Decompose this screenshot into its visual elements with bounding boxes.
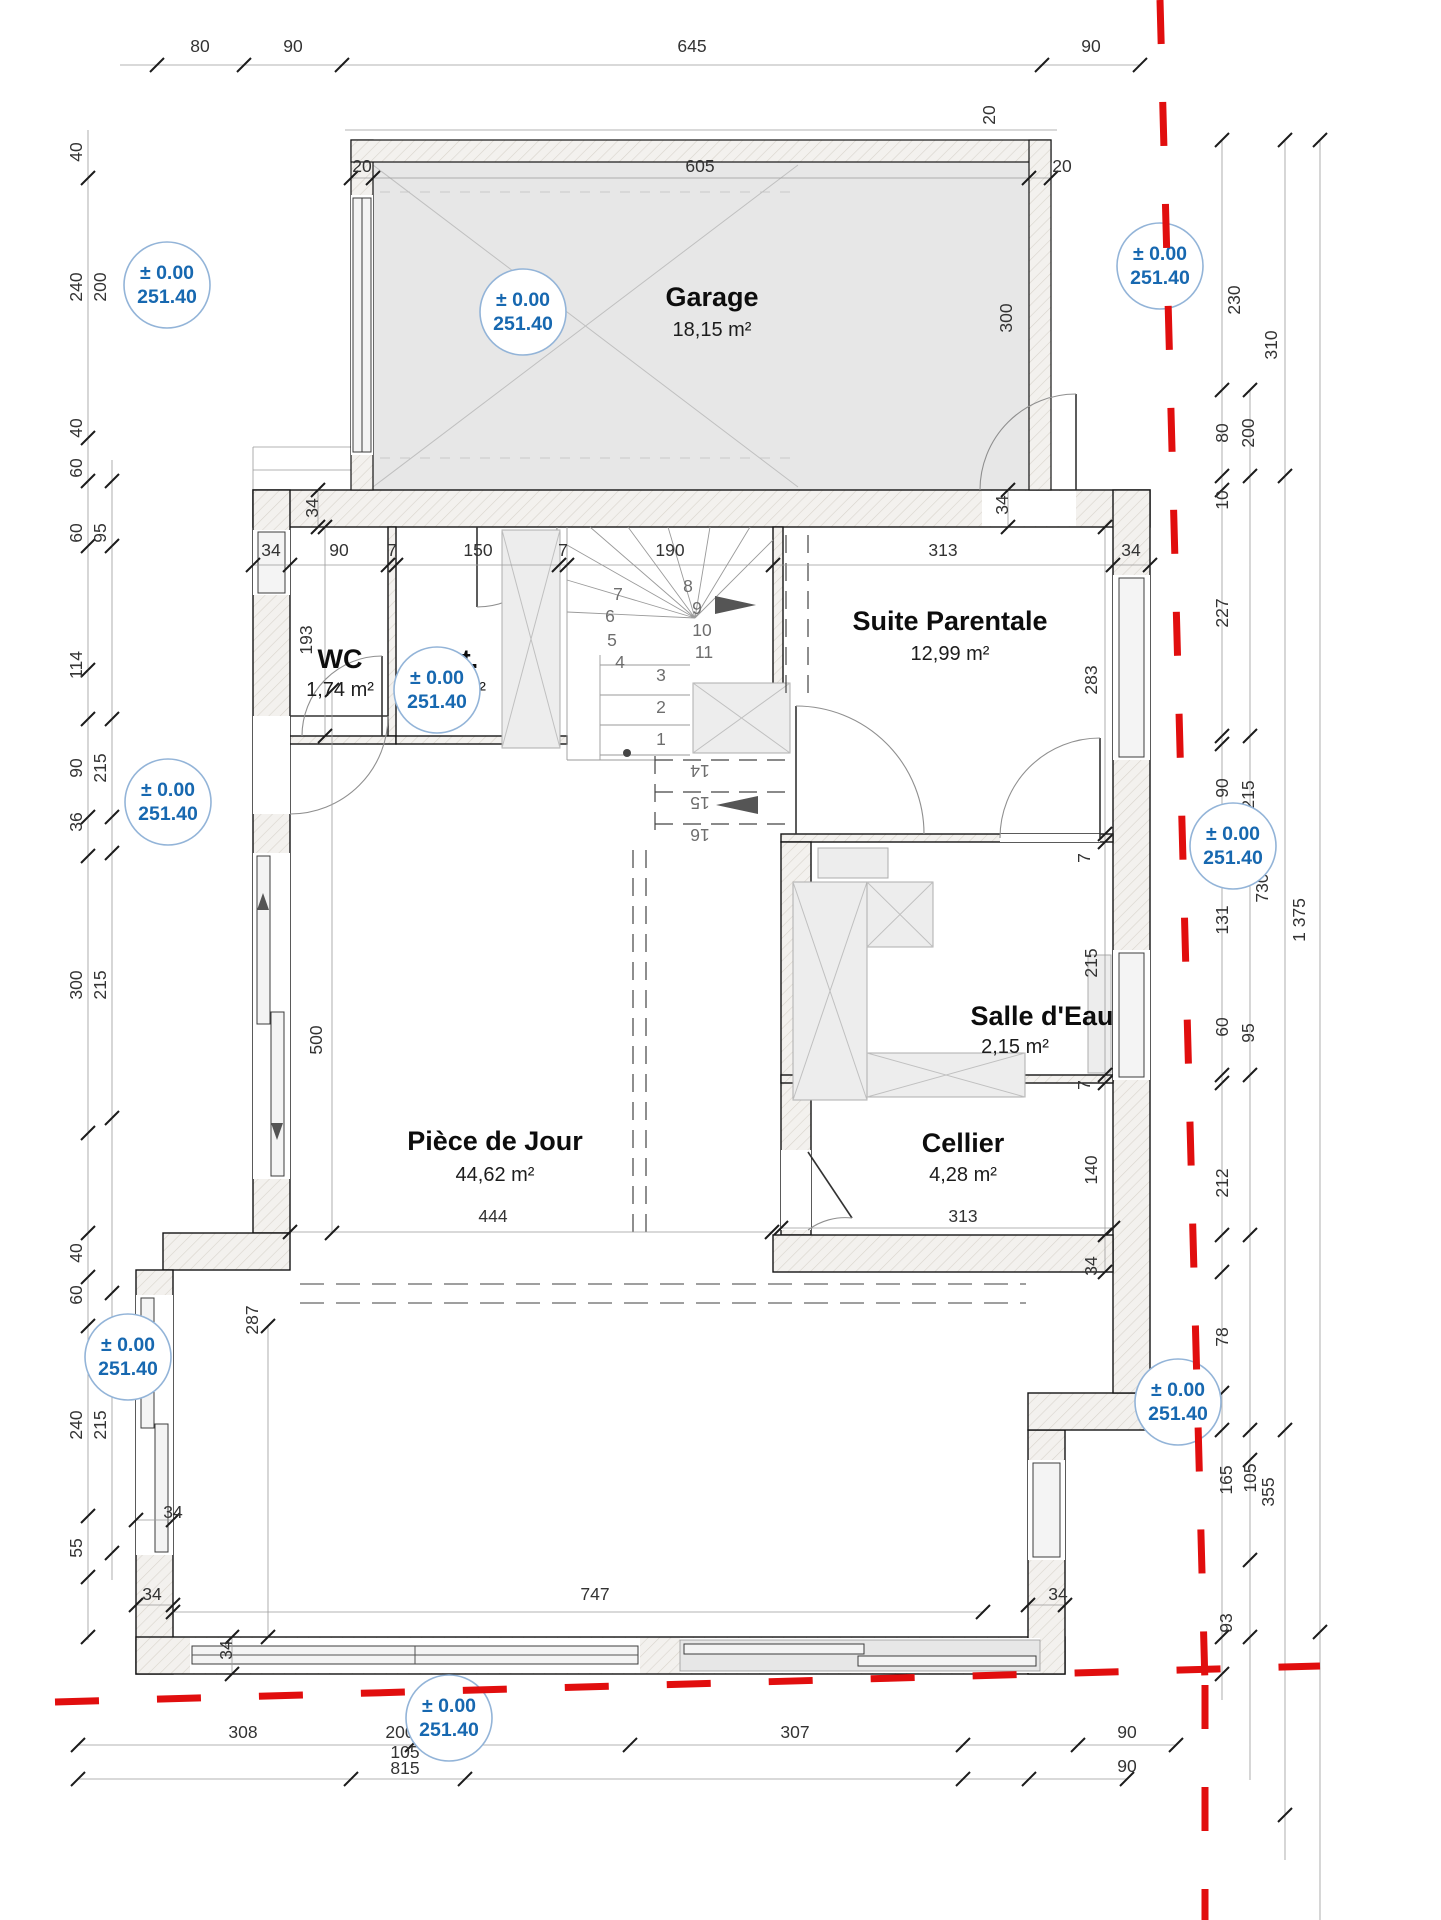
dim-label: 240 (66, 1410, 86, 1439)
svg-text:251.40: 251.40 (138, 803, 198, 825)
wall-wc-bottom (290, 736, 396, 744)
cellier-door (808, 1152, 852, 1230)
stair-under-flight (655, 756, 790, 830)
dim-label: 310 (1261, 330, 1281, 359)
dim-label: 60 (66, 1285, 86, 1305)
dim-label: 60 (66, 523, 86, 543)
floor-plan-drawing: Garage 18,15 m² WC 1,74 m² Dgt. 2,90 m² … (0, 0, 1441, 1920)
dim-label: 140 (1081, 1155, 1101, 1184)
wall-right-jog (1028, 1393, 1150, 1430)
dim-label: 16 (690, 825, 709, 845)
dim-label: 105 (1240, 1463, 1260, 1492)
svg-text:251.40: 251.40 (137, 286, 197, 308)
elevation-marker: ± 0.00251.40 (85, 1314, 171, 1400)
svg-text:± 0.00: ± 0.00 (141, 779, 195, 801)
dim-label: 215 (1081, 948, 1101, 977)
entry-door (290, 716, 388, 814)
elevation-marker: ± 0.00251.40 (1190, 803, 1276, 889)
svg-text:251.40: 251.40 (493, 313, 553, 335)
dim-label: 8 (683, 576, 693, 596)
dim-label: 215 (90, 753, 110, 782)
dim-label: 10 (692, 620, 712, 640)
dim-label: 80 (190, 36, 210, 56)
dim-label: 283 (1081, 665, 1101, 694)
dim-label: 444 (478, 1206, 507, 1226)
dim-label: 60 (1212, 1017, 1232, 1037)
elevation-marker: ± 0.00251.40 (394, 647, 480, 733)
stair-up-arrow (715, 596, 756, 614)
bottom-window (192, 1646, 638, 1664)
dim-label: 34 (992, 495, 1012, 515)
dim-label: 9 (692, 598, 702, 618)
sde-door (1000, 738, 1100, 838)
dim-label: 7 (558, 540, 568, 560)
dim-label: 4 (615, 652, 625, 672)
dim-label: 78 (1212, 1327, 1232, 1346)
dim-label: 200 (1238, 418, 1258, 447)
wall-cellier-bottom (773, 1235, 1113, 1272)
svg-text:251.40: 251.40 (98, 1358, 158, 1380)
room-label-cellier: Cellier (922, 1128, 1005, 1158)
dim-label: 300 (66, 970, 86, 999)
svg-text:± 0.00: ± 0.00 (1206, 823, 1260, 845)
dim-label: 36 (66, 812, 86, 831)
wall-stair-suite (773, 527, 783, 707)
dim-label: 95 (1238, 1023, 1258, 1042)
svg-text:± 0.00: ± 0.00 (496, 289, 550, 311)
dim-label: 20 (1052, 156, 1072, 176)
dim-label: 131 (1212, 905, 1232, 934)
dim-label: 6 (605, 606, 615, 626)
dim-label: 605 (685, 156, 714, 176)
dim-label: 34 (142, 1584, 162, 1604)
dim-label: 212 (1212, 1168, 1232, 1197)
dim-label: 34 (1081, 1256, 1101, 1276)
dim-label: 308 (228, 1722, 257, 1742)
staircase (567, 527, 790, 830)
dim-label: 7 (1074, 1080, 1094, 1090)
dim-label: 114 (66, 651, 86, 679)
dim-label: 90 (66, 758, 86, 778)
sde-vanity (818, 848, 888, 878)
dim-label: 40 (66, 418, 86, 438)
beam-lines (300, 1284, 1026, 1303)
dim-label: 240 (66, 272, 86, 301)
svg-text:251.40: 251.40 (419, 1719, 479, 1741)
dim-label: 40 (66, 1243, 86, 1263)
dim-label: 34 (1048, 1584, 1068, 1604)
dim-label: 90 (1081, 36, 1101, 56)
dim-label: 313 (928, 540, 957, 560)
dim-label: 200 (90, 272, 110, 301)
dim-label: 5 (607, 630, 617, 650)
room-area-garage: 18,15 m² (673, 319, 752, 341)
suite-window (1119, 578, 1144, 757)
dim-label: 3 (656, 665, 666, 685)
dim-label: 165 (1216, 1465, 1236, 1494)
room-label-sde: Salle d'Eau (971, 1001, 1114, 1031)
dim-label: 90 (283, 36, 303, 56)
dim-label: 193 (296, 625, 316, 654)
sde-window (1119, 953, 1144, 1077)
dim-label: 215 (90, 1410, 110, 1439)
svg-text:± 0.00: ± 0.00 (101, 1334, 155, 1356)
dim-label: 80 (1212, 423, 1232, 443)
svg-text:251.40: 251.40 (1203, 847, 1263, 869)
dim-label: 2 (656, 697, 666, 717)
dim-label: 14 (690, 761, 710, 781)
dim-label: 34 (163, 1502, 183, 1522)
dim-label: 307 (780, 1722, 809, 1742)
wall-left-jog (163, 1233, 290, 1270)
room-area-sde: 2,15 m² (981, 1036, 1049, 1058)
room-area-wc: 1,74 m² (306, 679, 374, 701)
dim-label: 34 (1121, 540, 1141, 560)
dim-label: 90 (1117, 1756, 1137, 1776)
dim-label: 227 (1212, 598, 1232, 627)
elevation-marker: ± 0.00251.40 (480, 269, 566, 355)
room-area-cellier: 4,28 m² (929, 1164, 997, 1186)
stair-down-arrow (716, 796, 758, 814)
svg-text:251.40: 251.40 (1130, 267, 1190, 289)
dim-label: 815 (390, 1758, 419, 1778)
garage-door (353, 198, 371, 452)
room-label-garage: Garage (665, 282, 758, 312)
svg-text:± 0.00: ± 0.00 (140, 262, 194, 284)
dim-label: 313 (948, 1206, 977, 1226)
dim-label: 1 (656, 729, 666, 749)
garage-wall-right (1029, 140, 1051, 490)
dim-label: 7 (387, 540, 397, 560)
opening-above-lines (786, 535, 808, 700)
dim-label: 34 (261, 540, 281, 560)
dim-label: 215 (90, 970, 110, 999)
dim-label: 90 (1117, 1722, 1137, 1742)
dim-label: 287 (242, 1305, 262, 1334)
dim-label: 500 (306, 1025, 326, 1054)
dim-label: 230 (1224, 285, 1244, 314)
dim-label: 20 (352, 156, 372, 176)
dim-label: 1 375 (1289, 898, 1309, 942)
svg-text:± 0.00: ± 0.00 (422, 1695, 476, 1717)
dim-label: 34 (216, 1640, 236, 1660)
room-label-suite: Suite Parentale (852, 606, 1047, 636)
dim-label: 60 (66, 458, 86, 478)
bottom-sliding-door (680, 1640, 1040, 1671)
elevation-marker: ± 0.00251.40 (125, 759, 211, 845)
dim-label: 300 (996, 303, 1016, 332)
dim-label: 747 (580, 1584, 609, 1604)
floor-plan-page: Garage 18,15 m² WC 1,74 m² Dgt. 2,90 m² … (0, 0, 1441, 1920)
dim-label: 55 (66, 1538, 86, 1557)
mezzanine-edge-lines (633, 850, 646, 1235)
svg-text:± 0.00: ± 0.00 (1133, 243, 1187, 265)
dim-label: 90 (329, 540, 349, 560)
lower-right-window (1033, 1463, 1060, 1557)
dim-label: 15 (690, 793, 709, 813)
dim-label: 7 (1074, 853, 1094, 863)
suite-door (796, 706, 924, 834)
elevation-marker: ± 0.00251.40 (124, 242, 210, 328)
svg-text:± 0.00: ± 0.00 (410, 667, 464, 689)
dim-label: 7 (613, 584, 623, 604)
dim-label: 150 (463, 540, 492, 560)
svg-text:251.40: 251.40 (1148, 1403, 1208, 1425)
dim-label: 90 (1212, 778, 1232, 798)
room-area-suite: 12,99 m² (911, 643, 990, 665)
room-area-piece: 44,62 m² (456, 1164, 535, 1186)
stair-start-dot (623, 749, 631, 757)
room-label-piece: Pièce de Jour (407, 1126, 583, 1156)
dim-label: 40 (66, 142, 86, 162)
dim-label: 93 (1216, 1613, 1236, 1632)
dim-label: 190 (655, 540, 684, 560)
dim-label: 34 (302, 498, 322, 518)
svg-text:251.40: 251.40 (407, 691, 467, 713)
dim-label: 10 (1212, 490, 1232, 510)
elevation-marker: ± 0.00251.40 (1135, 1359, 1221, 1445)
dim-label: 95 (90, 523, 110, 542)
dim-label: 20 (979, 105, 999, 125)
elevation-marker: ± 0.00251.40 (1117, 223, 1203, 309)
dim-label: 355 (1258, 1477, 1278, 1506)
dim-label: 645 (677, 36, 706, 56)
svg-text:± 0.00: ± 0.00 (1151, 1379, 1205, 1401)
dim-label: 11 (695, 642, 713, 662)
room-label-wc: WC (318, 644, 363, 674)
